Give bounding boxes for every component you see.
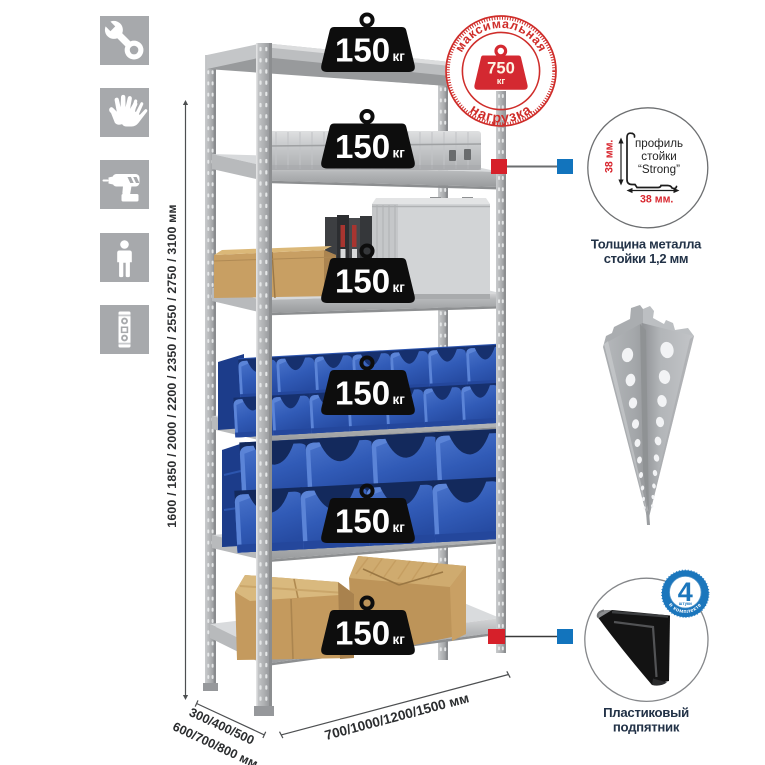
svg-text:подпятник: подпятник [613, 720, 680, 735]
svg-text:штуки: штуки [679, 601, 692, 606]
svg-text:750: 750 [487, 59, 515, 78]
svg-text:стойки 1,2 мм: стойки 1,2 мм [604, 251, 689, 266]
svg-text:стойки: стойки [641, 150, 676, 163]
svg-text:38 мм.: 38 мм. [640, 194, 673, 206]
svg-text:профиль: профиль [635, 137, 683, 150]
svg-text:кг: кг [497, 76, 506, 86]
svg-text:38 мм.: 38 мм. [604, 140, 616, 173]
svg-text:1600 / 1850 / 2000 / 2200 / 23: 1600 / 1850 / 2000 / 2200 / 2350 / 2550 … [165, 204, 179, 527]
svg-text:Пластиковый: Пластиковый [603, 705, 689, 720]
svg-text:“Strong”: “Strong” [638, 163, 680, 176]
svg-text:Толщина металла: Толщина металла [591, 237, 702, 252]
